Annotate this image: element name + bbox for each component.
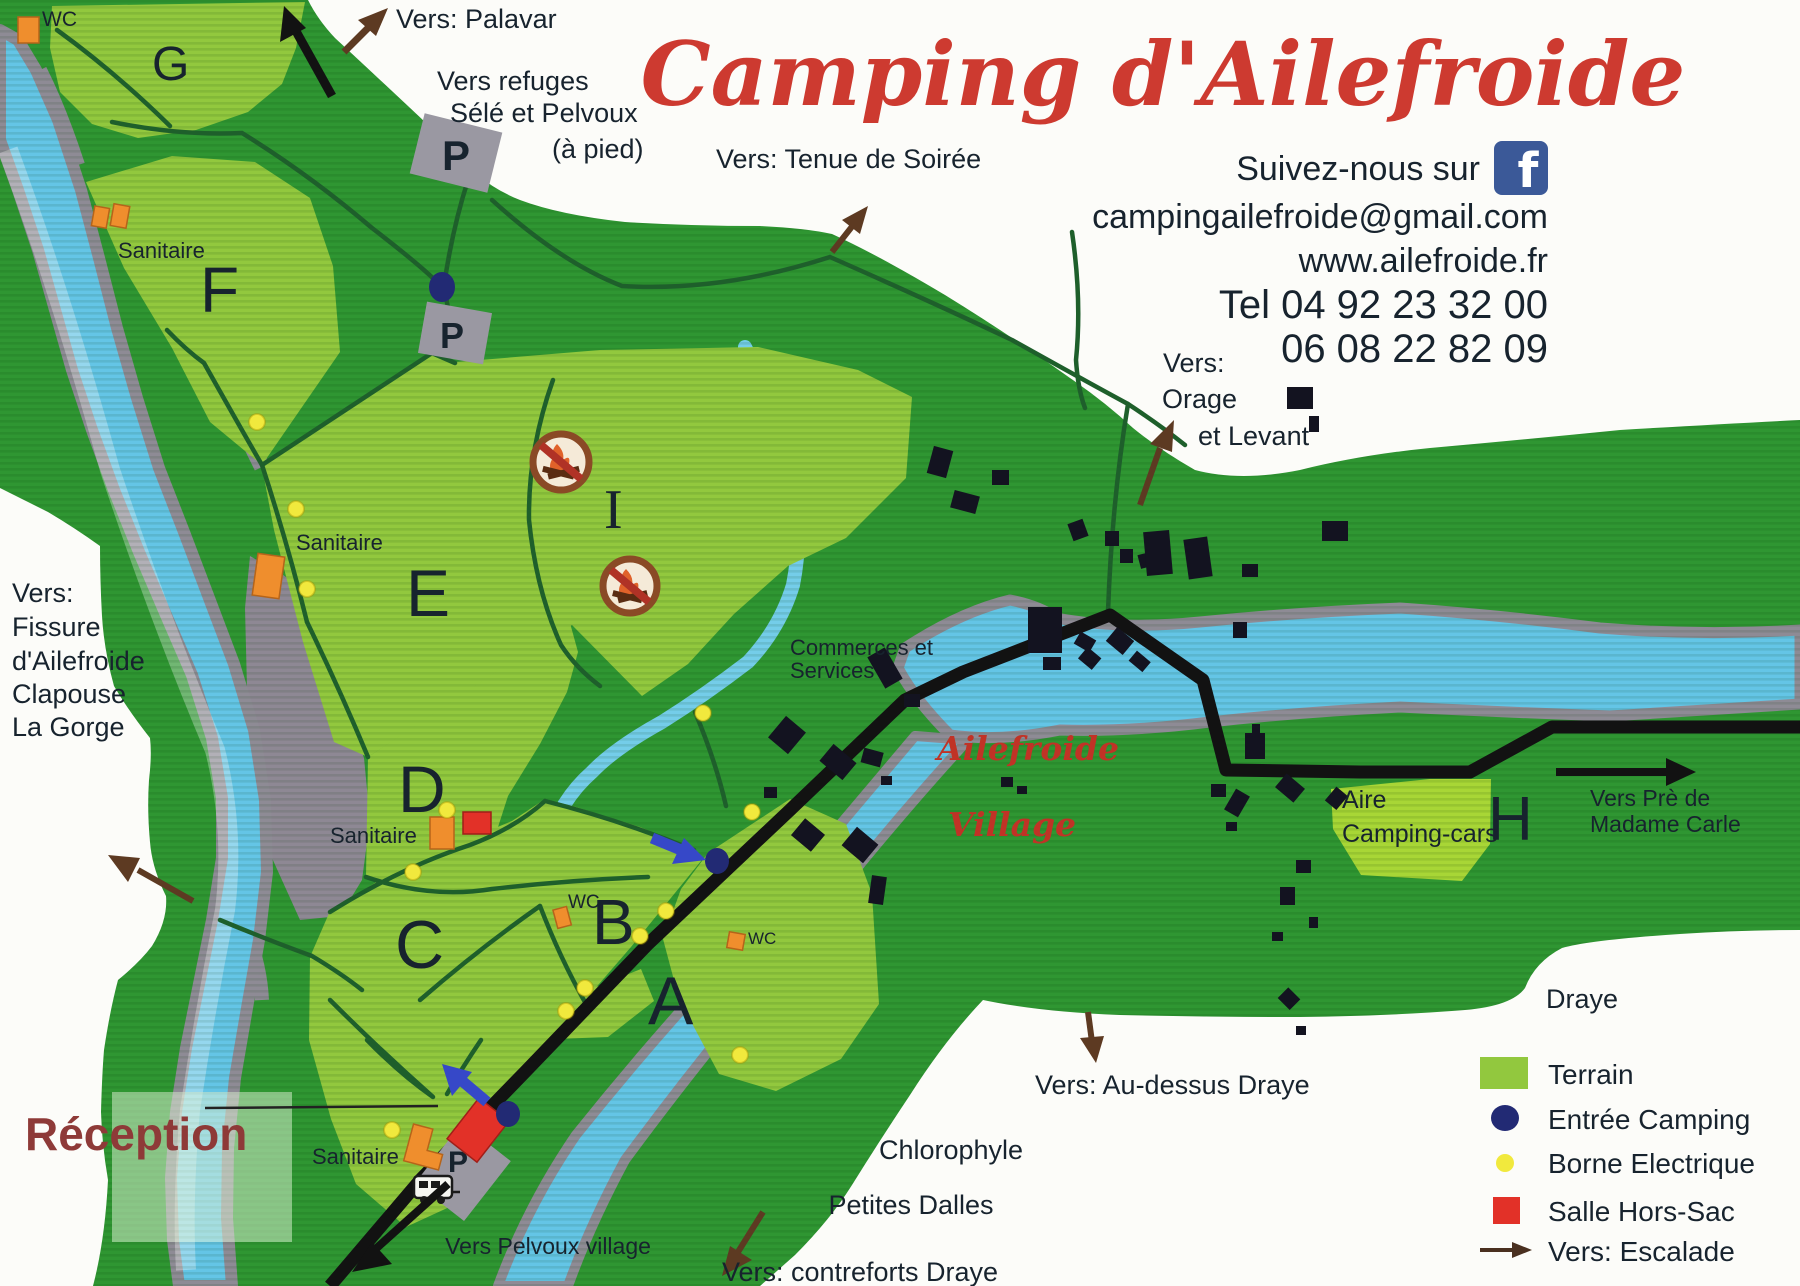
- camping-map-page: P P P: [0, 0, 1800, 1286]
- legend-terrain-swatch: [1480, 1057, 1528, 1089]
- tenue-label: Vers: Tenue de Soirée: [716, 144, 981, 174]
- contact-email: campingailefroide@gmail.com: [1092, 198, 1548, 236]
- zone-label-d: D: [398, 752, 446, 826]
- fissure-label-line1: Vers:: [12, 578, 74, 608]
- refuges-label-line1: Vers refuges: [437, 66, 589, 96]
- facebook-icon: f: [1494, 141, 1548, 199]
- chlorophyle-label: Chlorophyle: [879, 1135, 1023, 1165]
- contact-website: www.ailefroide.fr: [1298, 242, 1548, 280]
- village-label-line1: Ailefroide: [934, 729, 1119, 768]
- palavar-label: Vers: Palavar: [396, 4, 557, 34]
- entree-camping-mid: [705, 848, 729, 874]
- legend-escalade-label: Vers: Escalade: [1548, 1236, 1735, 1267]
- sanitaire-label-f: Sanitaire: [118, 238, 205, 263]
- legend-borne-swatch: [1496, 1154, 1514, 1172]
- legend-borne-label: Borne Electrique: [1548, 1148, 1755, 1179]
- contreforts-label: Vers: contreforts Draye: [722, 1257, 998, 1286]
- pelvoux-label: Vers Pelvoux village: [445, 1233, 651, 1259]
- madame-carle-label-line2: Madame Carle: [1590, 811, 1741, 837]
- page-title: Camping d'Ailefroide: [641, 22, 1686, 126]
- fissure-label-line2: Fissure: [12, 612, 101, 642]
- legend-entree-label: Entrée Camping: [1548, 1104, 1750, 1135]
- salle-hors-sac-d: [463, 812, 491, 834]
- sanitaire-label-e: Sanitaire: [296, 530, 383, 555]
- petites-dalles-label: Petites Dalles: [828, 1190, 993, 1220]
- village-label-line2: Village: [948, 805, 1076, 844]
- sanitaire-label-reception: Sanitaire: [312, 1144, 399, 1169]
- madame-carle-label-line1: Vers Prè de: [1590, 785, 1710, 811]
- legend-terrain-label: Terrain: [1548, 1059, 1634, 1090]
- reception-label: Réception: [25, 1108, 247, 1160]
- sanitaire-label-d: Sanitaire: [330, 823, 417, 848]
- legend-salle-label: Salle Hors-Sac: [1548, 1196, 1735, 1227]
- refuges-label-line3: (à pied): [552, 134, 644, 164]
- fissure-label-line4: Clapouse: [12, 679, 126, 709]
- orage-label-line2: Orage: [1162, 384, 1237, 414]
- follow-us-text: Suivez-nous sur: [1236, 150, 1480, 188]
- wc-building-a: [727, 932, 746, 951]
- parking-p-north: P: [442, 132, 470, 179]
- wc-building-g: [18, 17, 39, 43]
- fissure-label-line3: d'Ailefroide: [12, 646, 145, 676]
- legend-salle-swatch: [1493, 1197, 1520, 1224]
- no-campfire-icon-1: [533, 434, 589, 490]
- no-campfire-icon-2: [603, 559, 657, 613]
- zone-label-e: E: [406, 556, 450, 630]
- orage-label-line3: et Levant: [1198, 421, 1310, 451]
- parking-p-mid: P: [440, 315, 464, 356]
- map-canvas: P P P: [0, 0, 1800, 1286]
- contact-phone2: 06 08 22 82 09: [1281, 327, 1548, 371]
- entree-camping-north: [429, 272, 455, 302]
- zone-label-c: C: [395, 907, 444, 983]
- entree-camping-reception: [496, 1101, 520, 1127]
- legend-entree-swatch: [1491, 1105, 1519, 1131]
- fissure-label-line5: La Gorge: [12, 712, 125, 742]
- wc-label-g: WC: [42, 8, 77, 31]
- zone-label-g: G: [152, 38, 189, 91]
- refuges-label-line2: Sélé et Pelvoux: [450, 98, 638, 128]
- wc-label-a: WC: [748, 929, 776, 948]
- au-dessus-label: Vers: Au-dessus Draye: [1035, 1070, 1310, 1100]
- commerces-label-line2: Services: [790, 658, 874, 683]
- orage-label-line1: Vers:: [1163, 348, 1225, 378]
- zone-label-i: I: [604, 479, 623, 541]
- facebook-f: f: [1518, 143, 1540, 199]
- wc-label-b: WC: [568, 892, 600, 913]
- aire-label-line1: Aire: [1342, 786, 1386, 814]
- commerces-label-line1: Commerces et: [790, 635, 933, 660]
- contact-phone1: Tel 04 92 23 32 00: [1219, 283, 1548, 327]
- aire-label-line2: Camping-cars: [1342, 820, 1498, 848]
- draye-label: Draye: [1546, 984, 1618, 1014]
- zone-label-a: A: [648, 963, 694, 1039]
- zone-label-f: F: [200, 254, 239, 326]
